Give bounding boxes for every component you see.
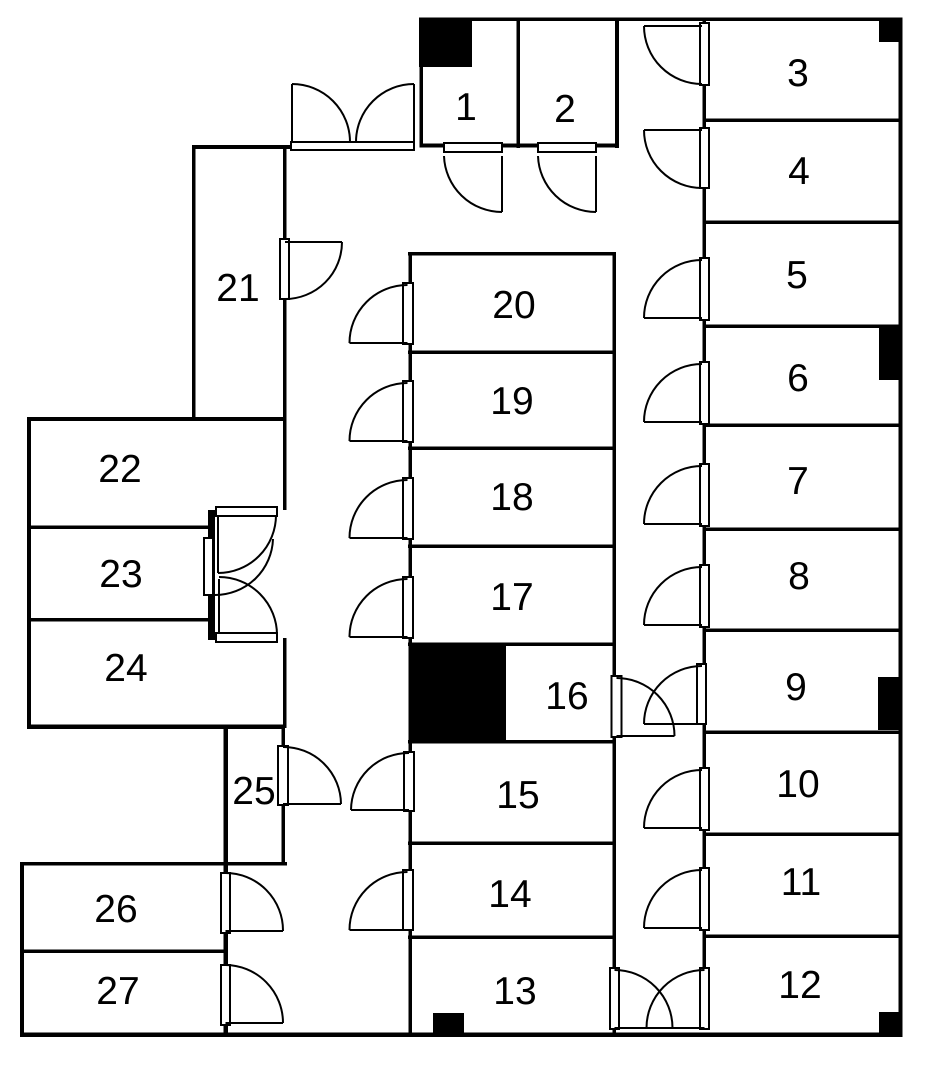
svg-text:9: 9	[785, 666, 807, 709]
svg-text:13: 13	[493, 970, 536, 1013]
svg-text:5: 5	[786, 254, 808, 297]
svg-text:11: 11	[781, 861, 822, 904]
svg-text:26: 26	[94, 888, 137, 931]
svg-text:3: 3	[787, 52, 809, 95]
svg-text:25: 25	[232, 770, 275, 813]
svg-text:7: 7	[787, 460, 809, 503]
svg-text:27: 27	[96, 970, 139, 1013]
svg-text:21: 21	[216, 267, 259, 310]
svg-text:16: 16	[545, 675, 588, 718]
svg-text:17: 17	[490, 576, 533, 619]
svg-text:8: 8	[788, 555, 810, 598]
svg-text:4: 4	[788, 150, 810, 193]
svg-text:24: 24	[104, 647, 147, 690]
svg-text:2: 2	[554, 88, 576, 131]
svg-text:23: 23	[99, 553, 142, 596]
svg-text:1: 1	[455, 86, 477, 129]
svg-text:15: 15	[496, 774, 539, 817]
svg-text:18: 18	[490, 476, 533, 519]
svg-text:22: 22	[98, 448, 141, 491]
svg-text:10: 10	[776, 763, 819, 806]
svg-text:12: 12	[778, 964, 821, 1007]
svg-text:20: 20	[492, 284, 535, 327]
svg-text:14: 14	[488, 873, 531, 916]
svg-text:6: 6	[787, 357, 809, 400]
svg-text:19: 19	[490, 380, 533, 423]
